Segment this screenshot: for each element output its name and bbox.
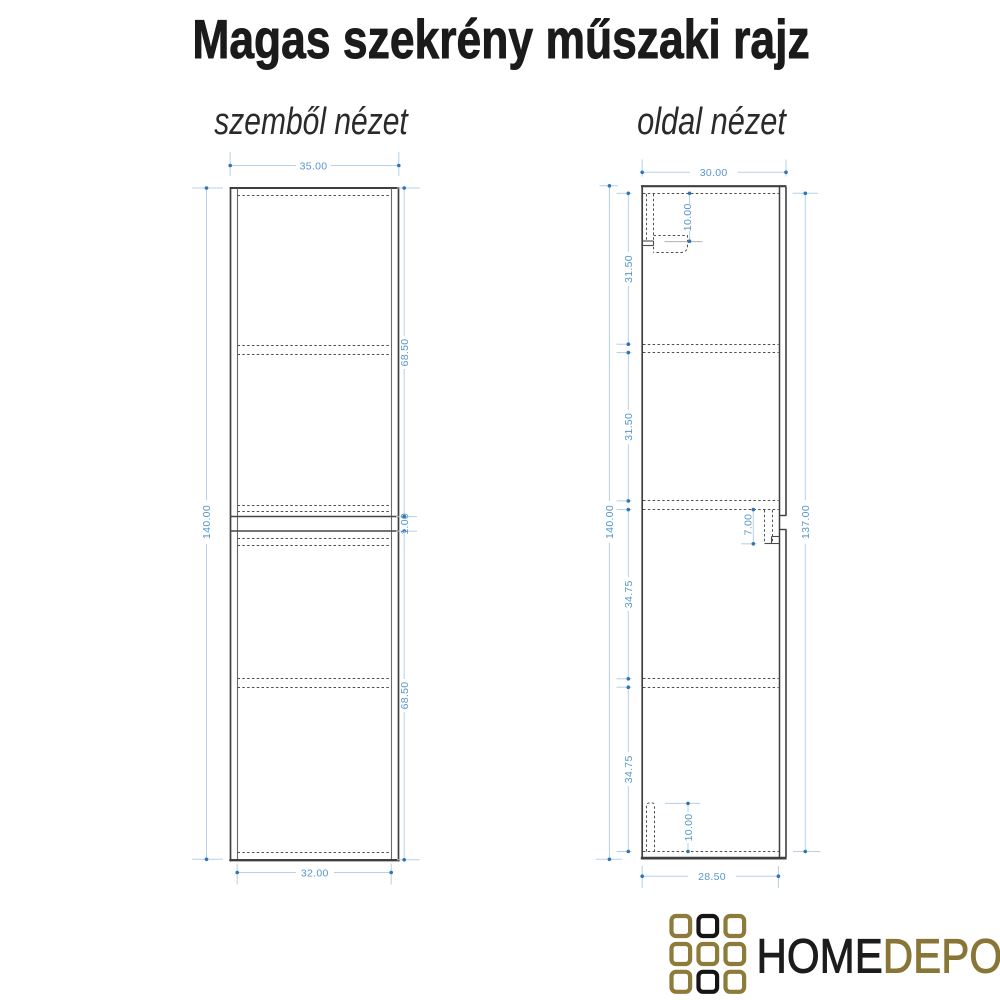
- svg-text:HOMEDEPO: HOMEDEPO: [757, 929, 1000, 983]
- svg-text:32.00: 32.00: [301, 867, 329, 879]
- svg-text:oldal nézet: oldal nézet: [637, 101, 787, 143]
- svg-text:31.50: 31.50: [623, 255, 635, 283]
- svg-text:31.50: 31.50: [623, 413, 635, 441]
- svg-text:28.50: 28.50: [698, 871, 726, 883]
- svg-text:68.50: 68.50: [399, 682, 411, 710]
- svg-text:szemből nézet: szemből nézet: [214, 101, 409, 143]
- svg-text:34.75: 34.75: [623, 580, 635, 608]
- svg-text:137.00: 137.00: [800, 505, 812, 539]
- svg-text:7.00: 7.00: [743, 514, 755, 536]
- svg-text:68.50: 68.50: [399, 339, 411, 367]
- svg-text:30.00: 30.00: [700, 167, 728, 179]
- svg-text:34.75: 34.75: [623, 755, 635, 783]
- svg-text:140.00: 140.00: [604, 505, 616, 539]
- svg-text:1.00: 1.00: [399, 513, 411, 535]
- svg-text:Magas szekrény műszaki rajz: Magas szekrény műszaki rajz: [192, 9, 809, 71]
- svg-text:10.00: 10.00: [682, 203, 694, 231]
- svg-text:140.00: 140.00: [201, 505, 213, 539]
- svg-text:10.00: 10.00: [683, 814, 695, 842]
- svg-text:35.00: 35.00: [300, 160, 328, 172]
